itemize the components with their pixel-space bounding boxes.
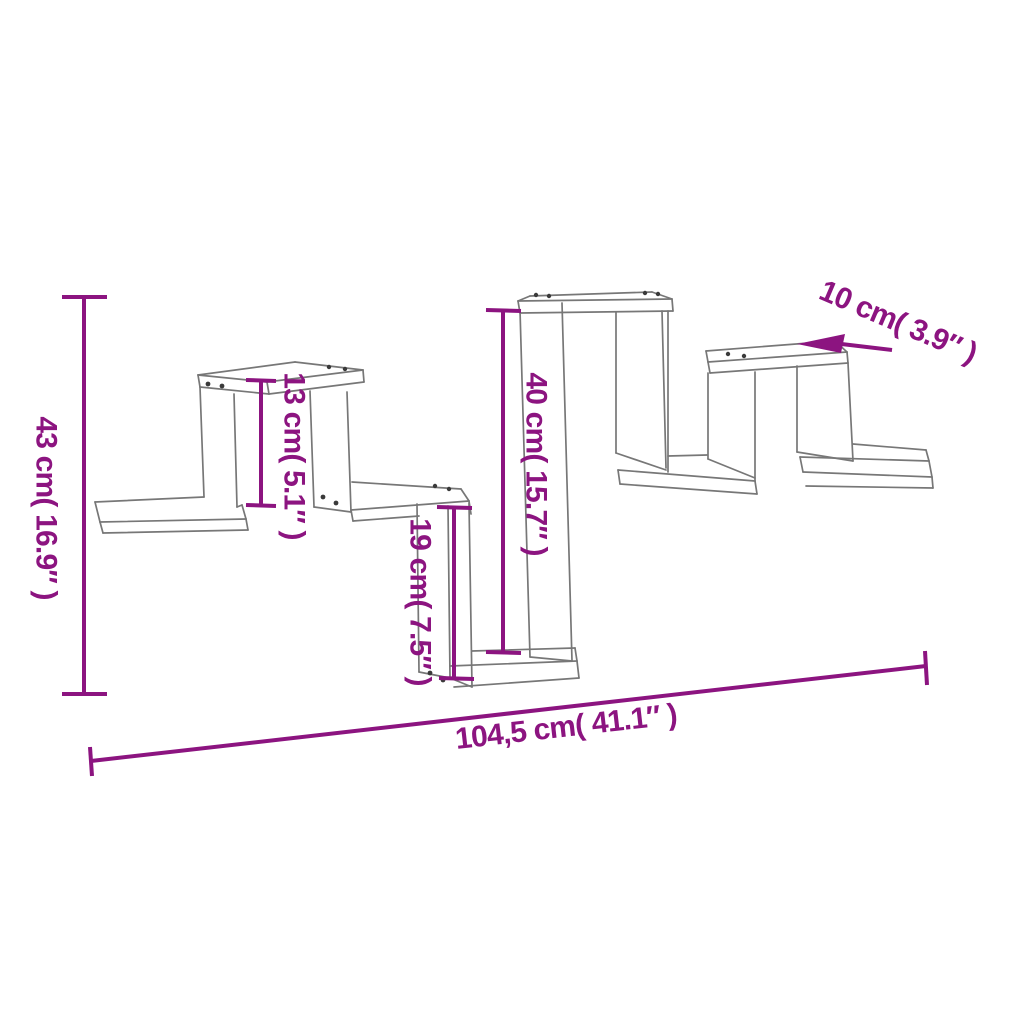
label-tall-box-height: 40 cm( 15.7″ ) <box>520 372 553 555</box>
label-total-height: 43 cm( 16.9″ ) <box>30 416 63 599</box>
label-lower-box-height: 19 cm( 7.5″ ) <box>404 518 437 685</box>
label-small-box-height: 13 cm( 5.1″ ) <box>278 372 311 539</box>
depth-arrowhead <box>797 334 845 353</box>
label-depth: 10 cm( 3.9″ ) <box>815 274 982 370</box>
dimension-diagram-svg: 43 cm( 16.9″ ) 13 cm( 5.1″ ) 40 cm( 15.7… <box>0 0 1024 1024</box>
box-upper-right <box>706 341 853 481</box>
dim-tall-box-height <box>486 310 521 653</box>
shelf-board-bottom-left <box>95 497 248 533</box>
dim-lower-box-height <box>437 507 474 679</box>
dim-total-width <box>90 651 927 776</box>
wall-shelf-drawing <box>95 291 933 687</box>
dim-total-height <box>62 297 107 694</box>
product-dimension-diagram: 43 cm( 16.9″ ) 13 cm( 5.1″ ) 40 cm( 15.7… <box>0 0 1024 1024</box>
shelf-board-far-right <box>800 444 933 488</box>
dim-small-box-height <box>246 380 276 506</box>
